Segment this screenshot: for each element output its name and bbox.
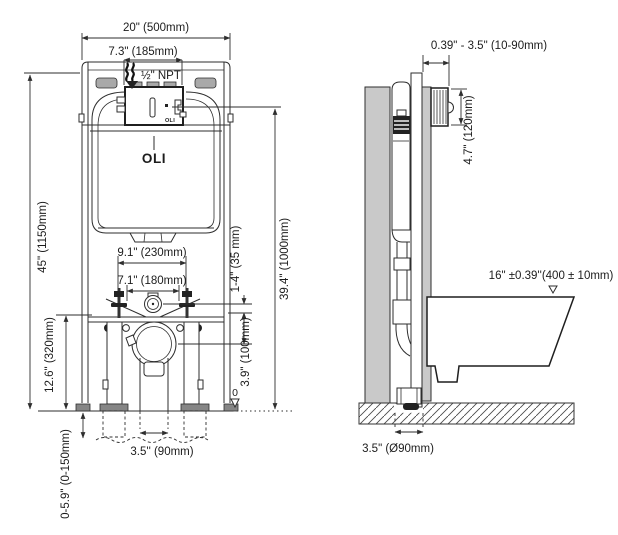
box-hinge-upper bbox=[117, 97, 125, 103]
supply-label: ½" NPT bbox=[141, 70, 181, 82]
dim-label: 16" ±0.39''(400 ± 10mm) bbox=[489, 270, 614, 282]
actuator-slot bbox=[150, 98, 155, 117]
valve-cap bbox=[397, 110, 406, 116]
datum-label: 0 bbox=[232, 387, 238, 399]
supply-connection bbox=[145, 293, 162, 313]
box-hinge-lower bbox=[117, 106, 125, 112]
leg-tab-right bbox=[198, 380, 203, 389]
foot-plate-left bbox=[100, 404, 128, 411]
tank-bottom-port bbox=[130, 233, 176, 242]
rough-wall bbox=[365, 87, 390, 403]
dim-label: 12.6" (320mm) bbox=[44, 317, 56, 393]
fill-valve bbox=[393, 116, 410, 134]
rail-washer-left bbox=[123, 325, 130, 332]
dim-offset-small: 1-4" (35 mm) bbox=[163, 225, 252, 322]
drawing-svg: OLI OLI ½" NPT bbox=[0, 0, 618, 535]
dim-label: 7.1" (180mm) bbox=[117, 275, 186, 287]
dim-label: 3.5" (Ø90mm) bbox=[362, 443, 434, 455]
flush-access-box: OLI bbox=[117, 82, 186, 125]
datum-triangle-icon bbox=[549, 286, 557, 293]
dim-label: 3.5'' (90mm) bbox=[130, 446, 193, 458]
dim-label: 45" (1150mm) bbox=[37, 201, 49, 273]
dim-drain-width: 3.5'' (90mm) bbox=[130, 433, 193, 458]
drain-gasket bbox=[403, 403, 419, 410]
tank-profile bbox=[392, 82, 410, 230]
break-line bbox=[96, 438, 208, 443]
brand-logo-small: OLI bbox=[165, 118, 175, 124]
rail-washer-right bbox=[177, 325, 184, 332]
dim-height-outlet: 12.6" (320mm) bbox=[44, 315, 92, 409]
pipe-coupling bbox=[394, 258, 410, 270]
leg-left bbox=[107, 322, 122, 404]
dim-label: 9.1" (230mm) bbox=[117, 247, 186, 259]
frame-upright bbox=[411, 73, 422, 407]
floor-slab bbox=[359, 403, 574, 424]
toilet-bowl-profile bbox=[427, 297, 574, 382]
dim-label: 39.4" (1000mm) bbox=[279, 218, 291, 300]
dim-label: 7.3" (185mm) bbox=[108, 46, 177, 58]
box-latch bbox=[180, 112, 186, 117]
flush-plate-housing bbox=[431, 88, 454, 126]
technical-drawing: OLI OLI ½" NPT bbox=[0, 0, 618, 535]
hanger-slot-left bbox=[96, 78, 117, 88]
foot-extension-right bbox=[184, 411, 206, 437]
foot-extension-left bbox=[103, 411, 125, 437]
dim-label: 4.7" (120mm) bbox=[463, 95, 475, 164]
front-view: OLI OLI ½" NPT bbox=[24, 22, 292, 519]
box-dot bbox=[165, 104, 168, 107]
leg-right bbox=[184, 322, 199, 404]
dim-label: 0.39" - 3.5" (10-90mm) bbox=[431, 40, 547, 52]
plate-button-bump bbox=[448, 102, 454, 113]
dim-wall-thickness: 0.39" - 3.5" (10-90mm) bbox=[423, 40, 547, 86]
leg-tab-left bbox=[103, 380, 108, 389]
fixing-bolt-left bbox=[111, 288, 127, 318]
dim-label: 20" (500mm) bbox=[123, 22, 189, 34]
bend-housing bbox=[393, 300, 411, 324]
frame-tab-left bbox=[79, 114, 84, 122]
frame-tab-right bbox=[228, 114, 233, 122]
fixing-bolt-right bbox=[179, 288, 195, 318]
dim-label: 3.9" (100mm) bbox=[240, 317, 252, 386]
hanger-slot-right bbox=[195, 78, 216, 88]
dim-feet-range: 0-5.9" (0-150mm) bbox=[60, 413, 83, 519]
side-view: 0.39" - 3.5" (10-90mm) 4.7" (120mm) 16" … bbox=[359, 40, 613, 455]
dim-bowl-height: 16" ±0.39''(400 ± 10mm) bbox=[489, 270, 614, 293]
dim-plate-height: 4.7" (120mm) bbox=[451, 89, 475, 165]
dim-label: 0-5.9" (0-150mm) bbox=[60, 429, 72, 519]
dim-label: 1-4" (35 mm) bbox=[230, 225, 242, 292]
rail-foot-left bbox=[76, 404, 90, 411]
brand-logo: OLI bbox=[142, 151, 166, 166]
foot-plate-right bbox=[181, 404, 209, 411]
